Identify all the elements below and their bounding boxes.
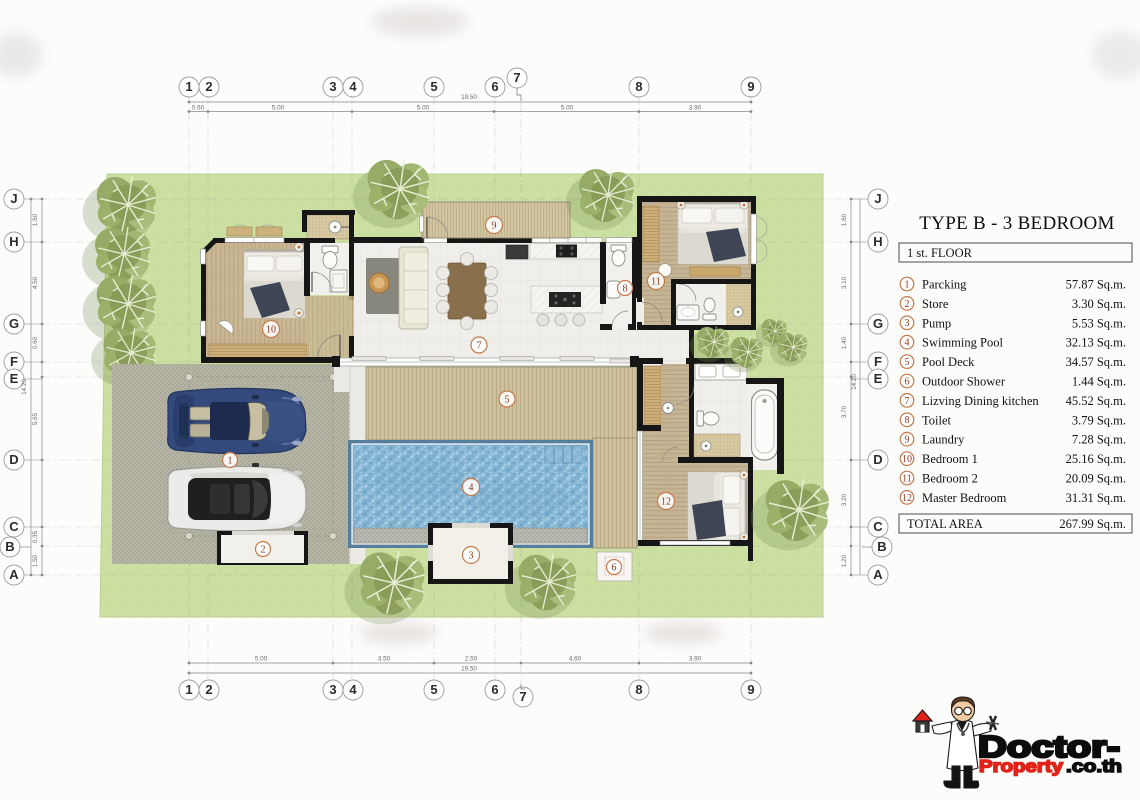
- svg-text:TYPE B - 3 BEDROOM: TYPE B - 3 BEDROOM: [919, 213, 1114, 234]
- svg-text:20.09 Sq.m.: 20.09 Sq.m.: [1066, 472, 1126, 486]
- svg-text:12: 12: [661, 496, 671, 507]
- svg-text:4: 4: [349, 682, 357, 697]
- svg-text:H: H: [9, 234, 18, 249]
- svg-text:Property: Property: [979, 756, 1063, 776]
- svg-text:7.28 Sq.m.: 7.28 Sq.m.: [1072, 433, 1126, 447]
- svg-text:Toilet: Toilet: [922, 413, 952, 427]
- svg-text:1: 1: [905, 279, 910, 290]
- svg-text:2: 2: [205, 682, 212, 697]
- svg-text:8: 8: [905, 415, 910, 426]
- svg-text:D: D: [873, 452, 882, 467]
- svg-text:2: 2: [261, 544, 266, 555]
- svg-text:0.60: 0.60: [192, 105, 205, 112]
- svg-text:Bedroom 2: Bedroom 2: [922, 472, 978, 486]
- svg-text:0.35: 0.35: [32, 530, 39, 543]
- svg-text:14.20: 14.20: [851, 374, 858, 390]
- svg-text:J: J: [10, 191, 17, 206]
- svg-text:2: 2: [905, 299, 910, 310]
- svg-text:C: C: [9, 519, 19, 534]
- svg-text:5: 5: [430, 79, 437, 94]
- svg-text:4: 4: [349, 79, 357, 94]
- svg-text:5.65: 5.65: [32, 412, 39, 425]
- svg-text:4: 4: [905, 338, 910, 349]
- svg-text:A: A: [873, 567, 883, 582]
- svg-text:1.44 Sq.m.: 1.44 Sq.m.: [1072, 375, 1126, 389]
- svg-text:3: 3: [905, 318, 910, 329]
- svg-text:3.90: 3.90: [689, 656, 702, 663]
- svg-text:3.70: 3.70: [841, 405, 848, 418]
- svg-text:34.57 Sq.m.: 34.57 Sq.m.: [1066, 355, 1126, 369]
- svg-text:8: 8: [635, 682, 642, 697]
- svg-text:9: 9: [747, 79, 754, 94]
- svg-text:267.99 Sq.m.: 267.99 Sq.m.: [1059, 517, 1126, 531]
- svg-text:3.90: 3.90: [689, 105, 702, 112]
- svg-text:7: 7: [477, 340, 482, 351]
- svg-text:A: A: [9, 567, 19, 582]
- svg-text:5.53 Sq.m.: 5.53 Sq.m.: [1072, 316, 1126, 330]
- svg-text:10: 10: [902, 454, 912, 465]
- svg-text:45.52 Sq.m.: 45.52 Sq.m.: [1066, 394, 1126, 408]
- svg-text:B: B: [5, 539, 14, 554]
- svg-text:3.30 Sq.m.: 3.30 Sq.m.: [1072, 297, 1126, 311]
- svg-text:14.20: 14.20: [21, 379, 28, 395]
- svg-text:4: 4: [469, 482, 474, 493]
- svg-text:6: 6: [491, 682, 498, 697]
- svg-text:9: 9: [905, 435, 910, 446]
- svg-text:4.60: 4.60: [569, 656, 582, 663]
- svg-text:Store: Store: [922, 297, 949, 311]
- svg-text:Bedroom 1: Bedroom 1: [922, 452, 978, 466]
- svg-text:11: 11: [902, 473, 912, 484]
- svg-text:7: 7: [519, 689, 526, 704]
- svg-text:32.13 Sq.m.: 32.13 Sq.m.: [1066, 336, 1126, 350]
- svg-text:E: E: [874, 371, 883, 386]
- svg-text:4.50: 4.50: [32, 276, 39, 289]
- svg-text:5.00: 5.00: [272, 105, 285, 112]
- svg-text:2: 2: [205, 79, 212, 94]
- svg-text:TOTAL AREA: TOTAL AREA: [907, 517, 983, 531]
- svg-text:19.50: 19.50: [461, 94, 477, 101]
- svg-text:Pool Deck: Pool Deck: [922, 355, 975, 369]
- svg-text:6: 6: [905, 376, 910, 387]
- svg-text:7: 7: [905, 396, 910, 407]
- svg-text:5.00: 5.00: [561, 105, 574, 112]
- svg-text:1: 1: [185, 79, 192, 94]
- svg-text:3.20: 3.20: [841, 493, 848, 506]
- svg-text:Outdoor Shower: Outdoor Shower: [922, 375, 1006, 389]
- svg-text:9: 9: [747, 682, 754, 697]
- svg-text:G: G: [873, 316, 883, 331]
- svg-text:25.16 Sq.m.: 25.16 Sq.m.: [1066, 452, 1126, 466]
- svg-text:5: 5: [905, 357, 910, 368]
- svg-text:8: 8: [635, 79, 642, 94]
- svg-text:Laundry: Laundry: [922, 433, 965, 447]
- svg-text:D: D: [9, 452, 18, 467]
- svg-text:Master Bedroom: Master Bedroom: [922, 491, 1007, 505]
- svg-text:Swimming Pool: Swimming Pool: [922, 336, 1003, 350]
- svg-text:3: 3: [469, 550, 474, 561]
- svg-text:3: 3: [329, 79, 336, 94]
- svg-text:F: F: [874, 354, 882, 369]
- svg-text:31.31 Sq.m.: 31.31 Sq.m.: [1066, 491, 1126, 505]
- svg-text:Parcking: Parcking: [922, 278, 967, 292]
- svg-text:9: 9: [492, 220, 497, 231]
- svg-text:5.00: 5.00: [417, 105, 430, 112]
- svg-text:6: 6: [612, 562, 617, 573]
- svg-text:.co.th: .co.th: [1066, 756, 1122, 776]
- svg-text:5: 5: [505, 394, 510, 405]
- svg-text:G: G: [9, 316, 19, 331]
- svg-text:Lizving Dining kitchen: Lizving Dining kitchen: [922, 394, 1039, 408]
- svg-text:5: 5: [430, 682, 437, 697]
- svg-text:C: C: [873, 519, 883, 534]
- svg-text:J: J: [874, 191, 881, 206]
- svg-text:3: 3: [329, 682, 336, 697]
- svg-text:11: 11: [651, 276, 661, 287]
- svg-text:H: H: [873, 234, 882, 249]
- svg-text:Pump: Pump: [922, 316, 951, 330]
- svg-text:5.00: 5.00: [255, 656, 268, 663]
- svg-text:1: 1: [228, 455, 233, 466]
- svg-text:8: 8: [623, 283, 628, 294]
- svg-text:57.87 Sq.m.: 57.87 Sq.m.: [1066, 278, 1126, 292]
- svg-text:1.50: 1.50: [32, 554, 39, 567]
- svg-text:19.50: 19.50: [461, 666, 477, 673]
- svg-text:E: E: [10, 371, 19, 386]
- svg-text:1.60: 1.60: [32, 213, 39, 226]
- svg-text:12: 12: [902, 493, 912, 504]
- svg-text:3.50: 3.50: [378, 656, 391, 663]
- svg-text:10: 10: [266, 324, 276, 335]
- svg-text:1 st. FLOOR: 1 st. FLOOR: [907, 246, 973, 260]
- svg-text:B: B: [877, 539, 886, 554]
- svg-text:1: 1: [185, 682, 192, 697]
- svg-text:0.60: 0.60: [32, 336, 39, 349]
- svg-text:3.10: 3.10: [841, 276, 848, 289]
- svg-text:2.50: 2.50: [465, 656, 478, 663]
- svg-text:1.40: 1.40: [841, 336, 848, 349]
- svg-text:6: 6: [491, 79, 498, 94]
- svg-text:3.79 Sq.m.: 3.79 Sq.m.: [1072, 413, 1126, 427]
- svg-text:F: F: [10, 354, 18, 369]
- svg-text:1.60: 1.60: [841, 213, 848, 226]
- svg-text:1.20: 1.20: [841, 554, 848, 567]
- svg-text:7: 7: [513, 70, 520, 85]
